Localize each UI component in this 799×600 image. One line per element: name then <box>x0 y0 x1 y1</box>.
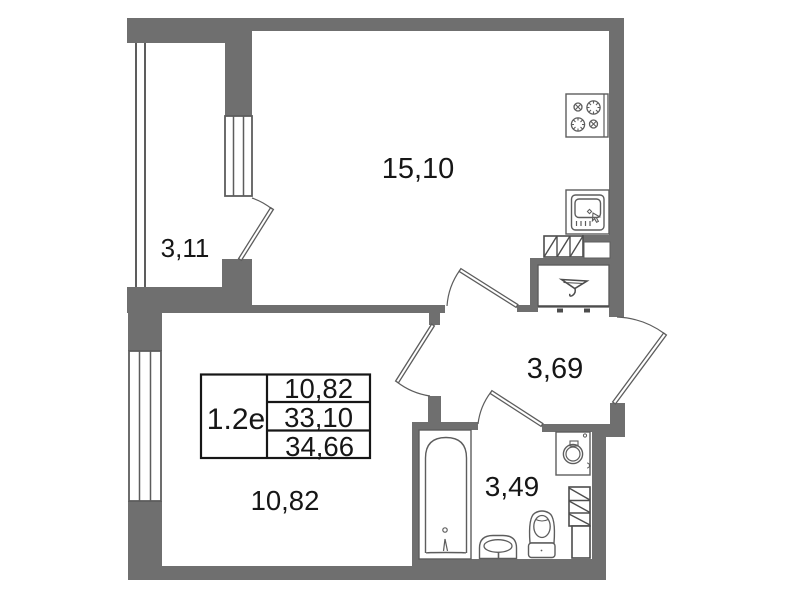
svg-text:3,49: 3,49 <box>485 471 540 502</box>
svg-text:1.2e: 1.2e <box>207 403 265 436</box>
svg-text:33,10: 33,10 <box>284 402 353 433</box>
svg-text:10,82: 10,82 <box>284 373 353 404</box>
svg-text:3,11: 3,11 <box>161 233 210 263</box>
svg-text:34,66: 34,66 <box>285 431 354 462</box>
svg-text:10,82: 10,82 <box>251 485 320 516</box>
svg-text:15,10: 15,10 <box>382 153 455 185</box>
svg-text:3,69: 3,69 <box>527 353 583 385</box>
